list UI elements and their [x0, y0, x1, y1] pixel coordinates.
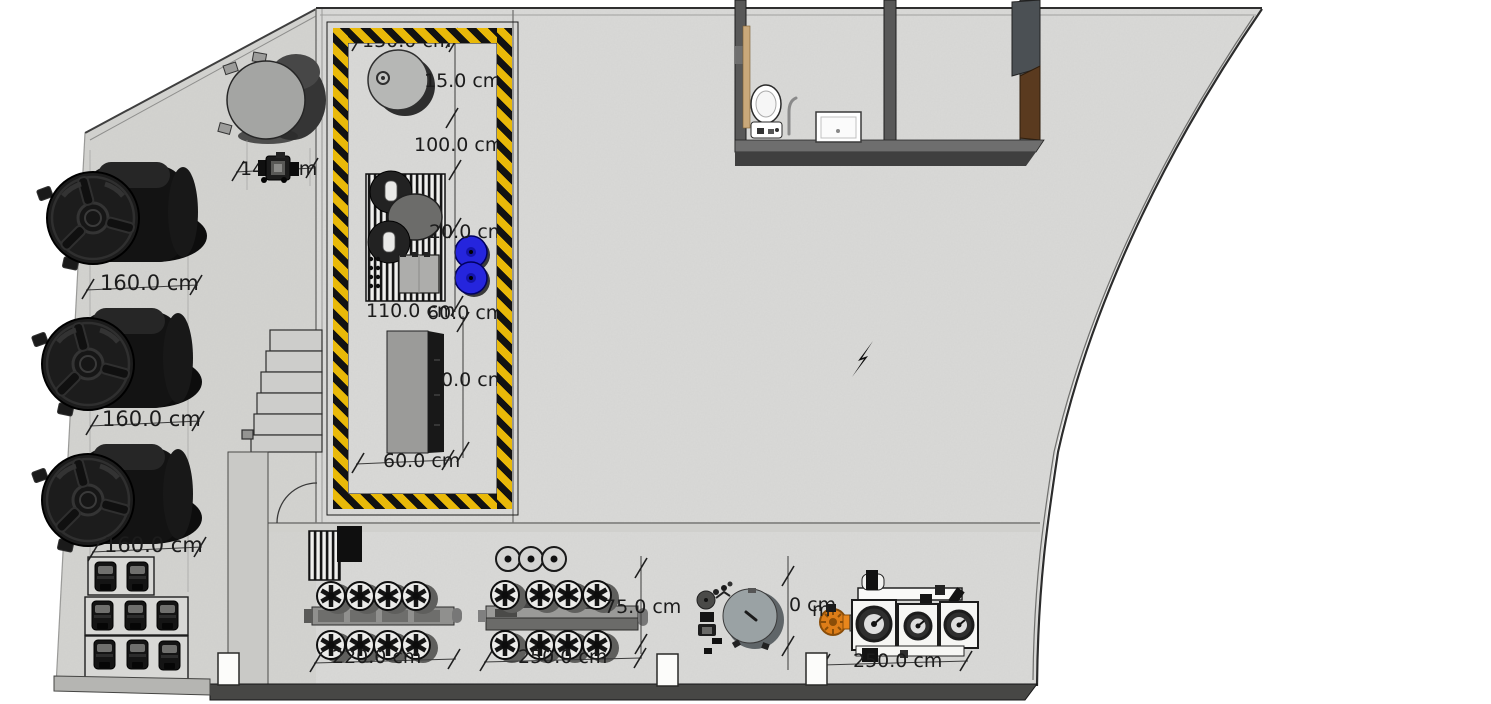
stair-step [270, 330, 322, 351]
dimension-label: 160.0 cm [100, 271, 199, 295]
sink [816, 112, 861, 142]
drum [94, 640, 115, 669]
storage-disc [519, 547, 543, 571]
stair-step [254, 414, 322, 435]
horizontal-storage-tank [31, 308, 202, 416]
bottom-left-wall [54, 676, 210, 695]
dimension-label: 220.0 cm [332, 646, 421, 668]
horizontal-storage-tank [36, 162, 207, 270]
small-pump [250, 146, 306, 188]
drum [95, 562, 116, 591]
pressure-gauge [905, 613, 931, 639]
drum [92, 601, 113, 630]
stair-step [251, 435, 322, 452]
landing-platform [228, 452, 268, 686]
restroom-door [743, 26, 750, 128]
dimension-label: 60.0 cm [427, 302, 504, 324]
drum [127, 562, 148, 591]
storage-disc [542, 547, 566, 571]
dimension-label: 160.0 cm [102, 407, 201, 431]
drum [157, 601, 178, 630]
dimension-label: 75.0 cm [604, 596, 681, 618]
bottom-wall [210, 684, 1037, 700]
hazard-border-bottom [333, 494, 512, 509]
wall-opening [657, 654, 678, 686]
dimension-label: 60.0 cm [383, 450, 460, 472]
hazard-border-right [497, 28, 512, 509]
pressure-gauge [857, 607, 891, 641]
brown-door-panel [1020, 66, 1040, 140]
dimension-label: m [812, 599, 831, 621]
plan-drawing [0, 0, 1491, 704]
dimension-label: 15.0 cm [424, 70, 501, 92]
workbench [387, 331, 444, 453]
storage-disc [496, 547, 520, 571]
wall-opening [218, 653, 239, 685]
drum [125, 601, 146, 630]
dimension-label: 160.0 cm [104, 533, 203, 557]
restroom-wall [884, 0, 896, 152]
hazard-border-top [333, 28, 512, 43]
wall-opening [806, 653, 827, 685]
drum [159, 641, 180, 670]
dimension-label: 20.0 cm [429, 221, 506, 243]
hazard-border-left [333, 28, 348, 509]
dimension-label: 250.0 cm [518, 646, 607, 668]
toilet [751, 85, 782, 138]
blue-drum-pair [455, 236, 490, 297]
stair-step [257, 393, 322, 414]
pressure-gauge [945, 611, 973, 639]
dimension-label: 250.0 cm [853, 650, 942, 672]
drum [127, 640, 148, 669]
stair-step [261, 372, 322, 393]
dimension-label: 100.0 cm [414, 134, 503, 156]
dark-panel [1012, 0, 1040, 76]
floor-plan-canvas: 130.0 cm 15.0 cm 100.0 cm 20.0 cm 110.0 … [0, 0, 1491, 704]
stair-step [266, 351, 322, 372]
